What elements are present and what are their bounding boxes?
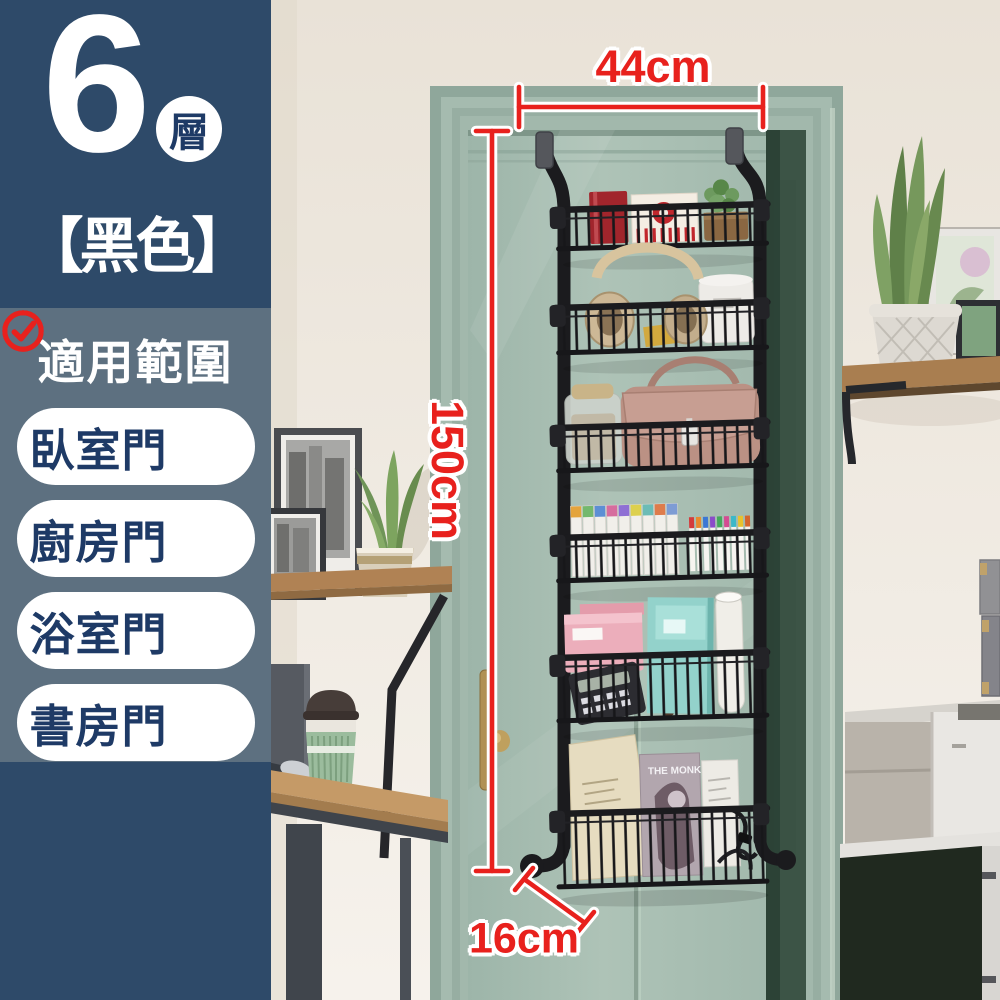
width-dimension-label: 44cm [595,41,710,93]
scope-item-bathroom-door: 浴室門 [17,592,255,669]
height-dimension-label: 150cm [421,400,473,540]
rack-hook-right [726,128,743,164]
over-door-rack: THE MONK [520,128,796,909]
printer [845,700,1000,852]
scope-panel: 適用範圍 臥室門 廚房門 浴室門 [0,308,271,762]
scope-item-kitchen-door: 廚房門 [17,500,255,577]
rack-foot-right [776,850,796,870]
check-icon [0,308,46,354]
rack-hook-left [536,132,553,168]
tier-unit-badge: 層 [156,96,222,162]
tier-count: 6 [42,0,151,182]
scope-item-label: 書房門 [30,690,168,755]
scope-item-label: 廚房門 [30,506,168,571]
cabinet [840,832,1000,1000]
storage-boxes [980,560,1000,696]
scope-item-bedroom-door: 臥室門 [17,408,255,485]
color-variant-label: 【黑色】 [0,198,271,285]
depth-dimension-label: 16cm [469,915,579,964]
product-image: THE MONK [0,0,1000,1000]
coffee-cup [303,690,359,784]
desk-leg [286,824,322,1000]
info-sidebar: 6 層 【黑色】 適用範圍 臥室門 廚房門 浴室門 [0,0,271,1000]
scope-item-label: 臥室門 [30,414,168,479]
scope-item-study-door: 書房門 [17,684,255,761]
magazine-title: THE MONK [648,765,702,778]
scope-item-label: 浴室門 [30,598,168,663]
